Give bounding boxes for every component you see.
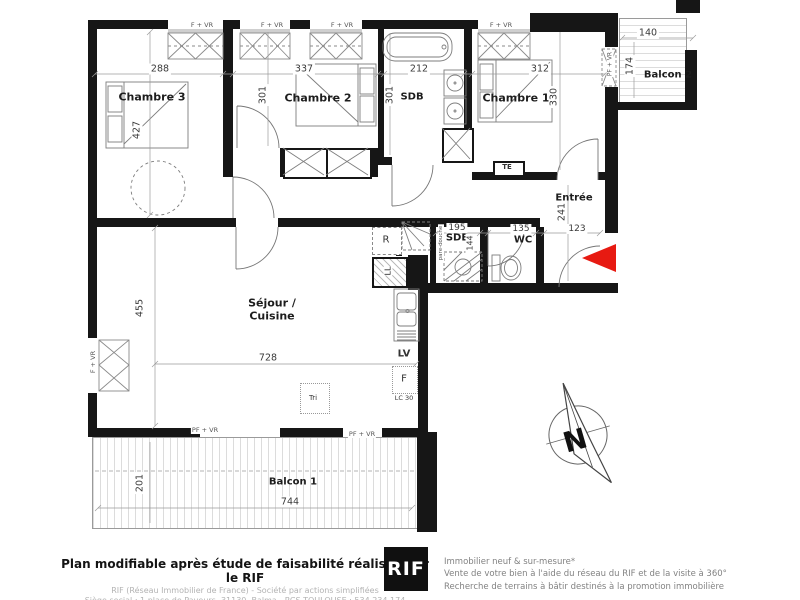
rif-logo: RIF	[384, 547, 428, 591]
wall	[418, 288, 428, 432]
window-sill	[310, 29, 362, 33]
dim-balcon2-width: 140	[637, 28, 659, 39]
dim-entree-width: 123	[566, 224, 587, 234]
footer-plan-note: Plan modifiable après étude de faisabili…	[55, 557, 435, 585]
wall	[362, 20, 478, 29]
room-label-wc: WC	[514, 235, 532, 246]
entrance-arrow-icon	[582, 244, 616, 272]
wall	[480, 227, 488, 283]
dim-wc-width: 135	[510, 224, 531, 234]
room-label-chambre1: Chambre 1	[482, 92, 549, 105]
wall	[530, 13, 607, 32]
window-label: PF + VR	[607, 51, 614, 77]
dim-sejour-width: 728	[257, 353, 279, 364]
wall	[278, 218, 540, 227]
room-label-sdb: SDB	[400, 92, 423, 103]
window-sill	[168, 29, 223, 33]
wall	[88, 428, 200, 437]
wall	[430, 227, 436, 283]
floor-plan: N Chambre 3 Chambre 2 SDB Chambre 1 Balc…	[0, 0, 800, 600]
closet-box	[283, 148, 328, 179]
window-label: PF + VR	[348, 430, 376, 438]
furniture	[106, 33, 552, 341]
wall	[536, 227, 544, 283]
wall	[598, 172, 618, 180]
dim-balcon2-depth: 174	[625, 55, 636, 77]
dim-chambre2-depth: 301	[258, 84, 269, 106]
room-label-chambre2: Chambre 2	[284, 92, 351, 105]
footer-services-block: Immobilier neuf & sur-mesure* Vente de v…	[444, 556, 774, 593]
window-label: F + VR	[489, 21, 513, 29]
dim-chambre1-depth: 330	[549, 86, 560, 108]
room-label-balcon1: Balcon 1	[269, 477, 317, 488]
window-sill	[478, 29, 530, 33]
footer-address-line: Siège social : 1 place de Paveurs, 31130…	[55, 596, 435, 600]
dim-balcon1-width: 744	[279, 497, 301, 508]
window-label: F + VR	[190, 21, 214, 29]
footer-service-line1: Immobilier neuf & sur-mesure*	[444, 556, 774, 568]
dim-balcon1-depth: 201	[135, 472, 146, 494]
dim-sde-depth: 144	[466, 233, 475, 252]
wall	[676, 0, 700, 13]
dim-chambre1-width: 312	[529, 64, 551, 75]
dim-sejour-depth: 455	[135, 297, 146, 319]
washing-machine-label: LL	[384, 267, 393, 276]
room-label-sejour-line2: Cuisine	[249, 310, 294, 323]
wall	[605, 13, 618, 47]
wall	[290, 20, 310, 29]
wall	[223, 20, 240, 29]
wall	[378, 29, 384, 157]
fridge-label: R	[383, 235, 390, 246]
wall	[417, 432, 437, 532]
window-label: F + VR	[89, 350, 97, 374]
dim-chambre3-width: 288	[149, 64, 171, 75]
footer-service-line2: Vente de votre bien à l'aide du réseau d…	[444, 568, 774, 580]
closet-box	[442, 128, 474, 163]
room-label-chambre3: Chambre 3	[118, 91, 185, 104]
window-label: PF + VR	[191, 426, 219, 434]
window-label: F + VR	[260, 21, 284, 29]
wall	[424, 283, 618, 293]
wall	[88, 20, 97, 338]
lc30-label: LC 30	[395, 394, 414, 402]
dim-entree-depth: 241	[557, 201, 568, 223]
tri-label: Tri	[309, 394, 317, 402]
wall	[95, 20, 168, 29]
dim-sde-width: 195	[446, 223, 467, 233]
window-symbols	[99, 33, 616, 391]
wall	[378, 157, 392, 165]
room-label-balcon2: Balcon 2	[644, 70, 692, 81]
shower-screen-label: pare-douche	[438, 225, 444, 262]
wall	[88, 218, 236, 227]
compass-rose: N	[531, 374, 624, 497]
window-sill	[240, 29, 290, 33]
compass-north-label: N	[559, 421, 591, 459]
wall	[464, 29, 472, 128]
wall	[280, 428, 343, 437]
oven-label: F	[401, 374, 407, 385]
footer-company-line: RIF (Réseau Immobilier de France) - Soci…	[55, 586, 435, 595]
dim-chambre3-depth: 427	[132, 119, 143, 141]
closet-box	[326, 148, 372, 179]
footer-service-line3: Recherche de terrains à bâtir destinés à…	[444, 581, 774, 593]
dim-chambre2-width: 337	[293, 64, 315, 75]
te-label: TE	[502, 163, 512, 171]
wall	[223, 29, 233, 177]
dim-sdb-width: 212	[408, 64, 430, 75]
window-label: F + VR	[330, 21, 354, 29]
dishwasher-label: LV	[398, 349, 411, 360]
footer-legal-block: Plan modifiable après étude de faisabili…	[55, 557, 435, 600]
room-label-sejour-line1: Séjour /	[248, 297, 296, 310]
dim-sdb-depth: 301	[385, 84, 396, 106]
